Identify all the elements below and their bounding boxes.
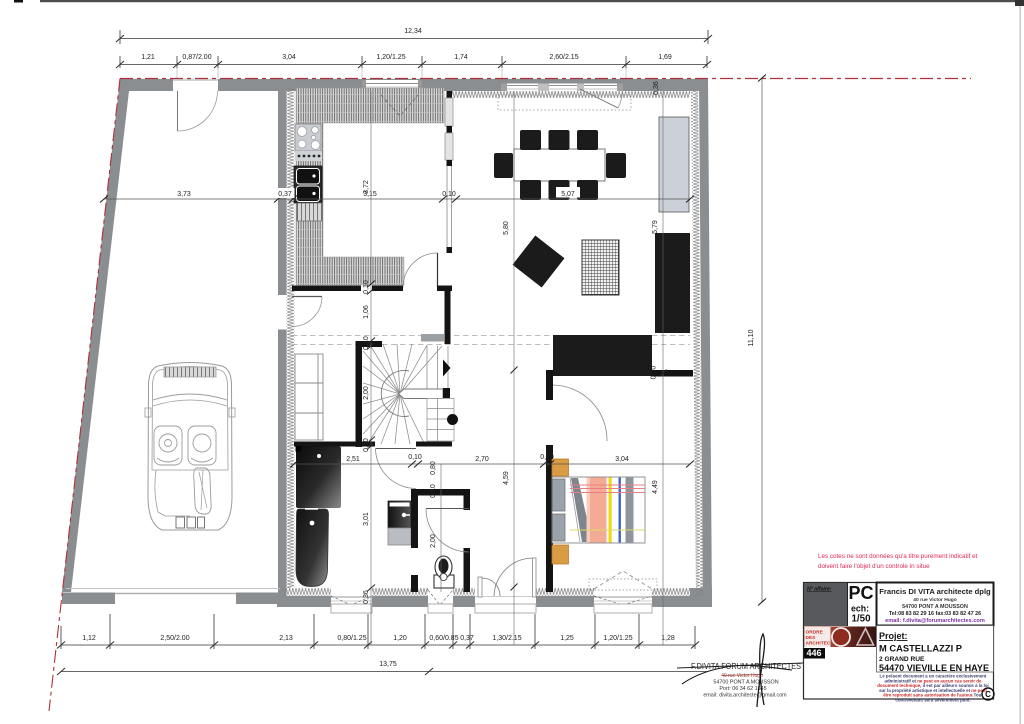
svg-text:54700 PONT A MOUSSON: 54700 PONT A MOUSSON	[713, 680, 778, 686]
svg-text:12,34: 12,34	[404, 28, 422, 35]
svg-text:0,37: 0,37	[460, 635, 474, 642]
svg-text:4,49: 4,49	[652, 480, 659, 494]
svg-text:C: C	[985, 690, 991, 699]
svg-text:0,10: 0,10	[540, 454, 554, 461]
svg-text:40 rue Victor Hugo: 40 rue Victor Hugo	[721, 673, 763, 679]
svg-text:0,36: 0,36	[363, 590, 370, 604]
svg-text:1,20: 1,20	[393, 635, 407, 642]
svg-text:4,59: 4,59	[503, 471, 510, 485]
svg-text:0,10: 0,10	[363, 336, 370, 350]
svg-text:5,79: 5,79	[652, 220, 659, 234]
svg-text:54470 VIEVILLE EN HAYE: 54470 VIEVILLE EN HAYE	[879, 663, 990, 674]
svg-text:5,80: 5,80	[503, 221, 510, 235]
svg-text:1,20/1.25: 1,20/1.25	[603, 635, 632, 642]
svg-text:N° affaire:: N° affaire:	[807, 587, 832, 593]
svg-text:0,10: 0,10	[363, 280, 370, 294]
svg-text:ORDRE: ORDRE	[806, 630, 824, 636]
svg-text:1/50: 1/50	[851, 614, 871, 625]
svg-text:2 GRAND RUE: 2 GRAND RUE	[879, 656, 925, 663]
svg-text:3,01: 3,01	[363, 512, 370, 526]
svg-text:PC: PC	[848, 583, 873, 603]
svg-text:M CASTELLAZZI P: M CASTELLAZZI P	[879, 644, 963, 655]
svg-text:1,25: 1,25	[560, 635, 574, 642]
svg-text:ARCHITEC: ARCHITEC	[806, 641, 831, 647]
svg-text:contrevenant sera sévèrement p: contrevenant sera sévèrement puni.	[895, 698, 970, 703]
svg-text:13,75: 13,75	[379, 661, 397, 668]
svg-text:Tel:08 83 82 29 16 fax:03 83: Tel:08 83 82 29 16 fax:03 83 82 47 26	[889, 611, 981, 617]
svg-text:ech:: ech:	[851, 604, 869, 614]
svg-text:email: divita.architecte@gmail: email: divita.architecte@gmail.com	[703, 693, 787, 699]
svg-text:1,20/1.25: 1,20/1.25	[376, 54, 405, 61]
svg-text:2,70: 2,70	[475, 456, 489, 463]
svg-text:54700 PONT A MOUSSON: 54700 PONT A MOUSSON	[902, 604, 968, 610]
svg-text:0,37: 0,37	[278, 191, 292, 198]
svg-text:3,73: 3,73	[177, 191, 191, 198]
svg-text:0,10: 0,10	[651, 366, 658, 380]
svg-text:0,80/1.25: 0,80/1.25	[337, 635, 366, 642]
svg-text:0,87/2.00: 0,87/2.00	[182, 54, 211, 61]
svg-text:Les cotes ne sont données qu'a: Les cotes ne sont données qu'a titre pur…	[818, 553, 978, 560]
svg-text:0,10: 0,10	[363, 438, 370, 452]
svg-text:0,10: 0,10	[408, 454, 422, 461]
svg-text:1,30/2.15: 1,30/2.15	[492, 635, 521, 642]
svg-text:11,10: 11,10	[748, 329, 755, 346]
svg-text:Francis DI VITA architecte dpl: Francis DI VITA architecte dplg	[879, 587, 991, 596]
svg-text:0,10: 0,10	[430, 484, 437, 498]
svg-text:2,51: 2,51	[346, 456, 360, 463]
svg-text:1,12: 1,12	[82, 635, 96, 642]
svg-text:Projet:: Projet:	[879, 631, 908, 641]
svg-text:2,13: 2,13	[279, 635, 293, 642]
svg-text:1,69: 1,69	[658, 54, 672, 61]
svg-text:2,00: 2,00	[363, 386, 370, 400]
svg-text:0,80: 0,80	[430, 461, 437, 475]
svg-text:0,60/0.85: 0,60/0.85	[429, 635, 458, 642]
svg-text:0,36: 0,36	[653, 81, 660, 95]
svg-text:3,72: 3,72	[363, 180, 370, 194]
svg-text:email: f.divita@forumarchitect: email: f.divita@forumarchitectes.com	[885, 618, 985, 624]
svg-text:2,00: 2,00	[430, 534, 437, 548]
svg-text:2,60/2.15: 2,60/2.15	[549, 54, 578, 61]
svg-text:doivent faire l'objet d'un con: doivent faire l'objet d'un controle in s…	[818, 563, 930, 570]
svg-text:2,50/2.00: 2,50/2.00	[160, 635, 189, 642]
svg-text:5,07: 5,07	[561, 191, 575, 198]
svg-text:3,04: 3,04	[282, 54, 296, 61]
svg-text:1,06: 1,06	[363, 305, 370, 319]
svg-text:40 rue Victor Hugo: 40 rue Victor Hugo	[913, 597, 956, 603]
svg-text:446: 446	[806, 648, 821, 658]
svg-text:1,21: 1,21	[141, 54, 155, 61]
svg-text:0,10: 0,10	[442, 191, 456, 198]
svg-text:3,04: 3,04	[615, 456, 629, 463]
svg-text:1,74: 1,74	[454, 54, 468, 61]
svg-text:DES: DES	[806, 635, 817, 641]
